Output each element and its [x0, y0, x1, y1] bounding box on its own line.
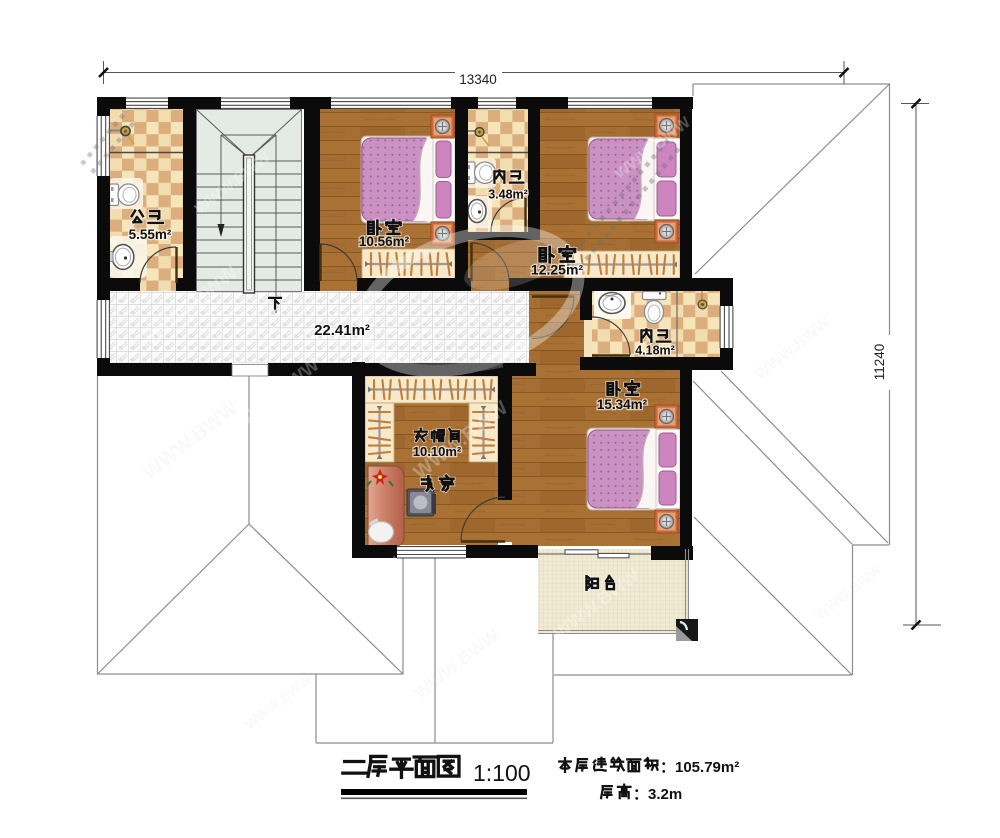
svg-text:11240: 11240	[872, 344, 887, 381]
svg-text:10.10m²: 10.10m²	[413, 444, 462, 459]
svg-text:3.48m²: 3.48m²	[488, 188, 528, 202]
svg-text:22.41m²: 22.41m²	[314, 322, 370, 339]
svg-text:12.25m²: 12.25m²	[531, 262, 583, 278]
svg-text:：105.79m²: ：105.79m²	[660, 759, 739, 776]
svg-text:10.56m²: 10.56m²	[359, 234, 410, 249]
svg-text:：3.2m: ：3.2m	[633, 786, 682, 803]
svg-text:5.55m²: 5.55m²	[129, 227, 172, 242]
svg-text:13340: 13340	[459, 72, 497, 87]
svg-text:4.18m²: 4.18m²	[635, 344, 675, 358]
svg-text:15.34m²: 15.34m²	[597, 397, 648, 412]
svg-text:1:100: 1:100	[473, 760, 531, 786]
